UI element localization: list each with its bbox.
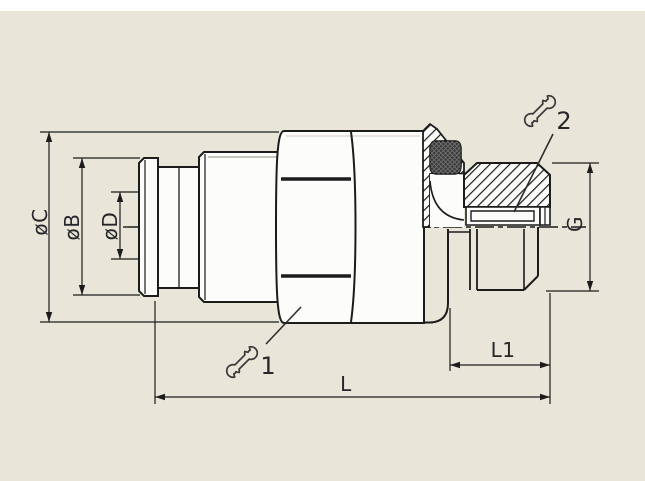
hex-body: [276, 131, 424, 323]
thread-chamfer: [524, 276, 538, 290]
paper-edge-strip: [0, 0, 645, 11]
dim-l1: L1: [491, 338, 516, 362]
dim-g: G: [563, 216, 587, 232]
dim-label-od: øD: [98, 212, 122, 241]
drawing-canvas: øC øB øD G L1 L 1 2: [0, 0, 645, 481]
wrench-number-2: 2: [556, 107, 571, 135]
dim-label-l1: L1: [491, 338, 516, 362]
wrench-icon: [224, 344, 260, 380]
dim-label-g: G: [563, 216, 587, 232]
collet-flange: [139, 158, 158, 296]
fitting-technical-drawing: øC øB øD G L1 L 1 2: [0, 0, 645, 481]
male-thread: [424, 227, 538, 323]
thread-relief-lines: [470, 229, 477, 290]
nut-block: [464, 163, 550, 207]
collet: [139, 158, 199, 296]
dim-oc: øC: [28, 208, 52, 235]
hex-outline: [276, 131, 424, 323]
wrench-icon: [522, 93, 558, 129]
dim-label-l: L: [340, 372, 352, 396]
thread-slot-inner: [471, 211, 534, 221]
shoulder-face: [430, 229, 448, 323]
wrench-number-1: 1: [260, 352, 275, 380]
o-ring-seal: [430, 141, 461, 174]
dim-ob: øB: [60, 214, 84, 241]
union-nut-section: [464, 163, 550, 225]
body-cylinder: [199, 152, 283, 302]
dim-l: L: [340, 372, 352, 396]
dim-od: øD: [98, 212, 122, 241]
dim-label-oc: øC: [28, 208, 52, 235]
dim-label-ob: øB: [60, 214, 84, 241]
section-cut: [423, 124, 466, 227]
